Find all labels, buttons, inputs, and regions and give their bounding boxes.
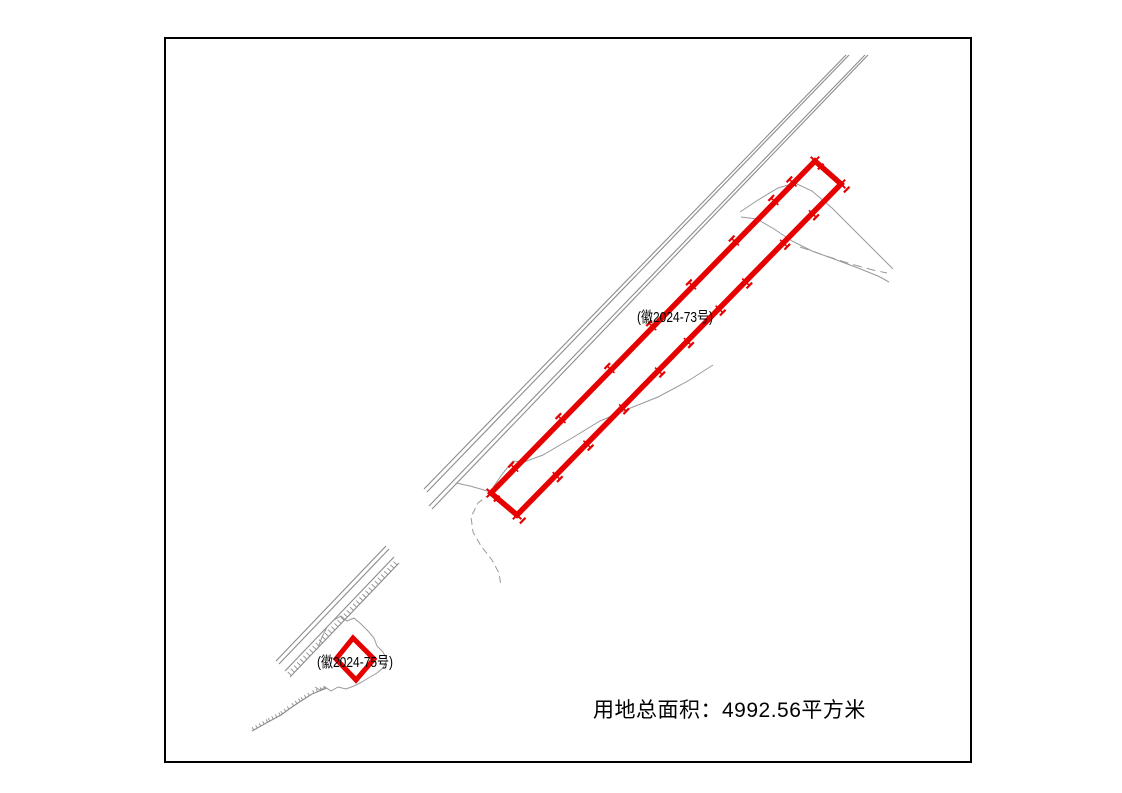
contour-spur [456,483,491,492]
ne-road-2 [427,55,849,492]
contour-trail-dashed [471,493,501,586]
sw-embankment-hatch-2 [252,686,327,731]
sw-road-1 [276,546,386,661]
main-parcel-label: (徽2024-73号) [637,306,713,327]
ne-road-3 [429,55,865,506]
ne-road-1 [424,55,846,489]
road-lines [276,55,868,671]
contour-lines [315,183,893,691]
hill-curve-2 [741,217,889,282]
site-plan-page: (徽2024-73号) (徽2024-75号) 用地总面积：4992.56平方米 [0,0,1122,793]
ne-road-4 [432,55,868,509]
main-parcel-corner-markers [487,157,850,524]
site-plan-canvas [0,0,1122,793]
main-parcel-boundary [487,157,850,524]
total-area-label: 用地总面积：4992.56平方米 [593,694,866,724]
small-parcel-label: (徽2024-75号) [317,651,393,672]
sw-road-2 [279,549,389,664]
hill-curve-1 [740,183,893,269]
parcel-boundaries [336,157,850,680]
